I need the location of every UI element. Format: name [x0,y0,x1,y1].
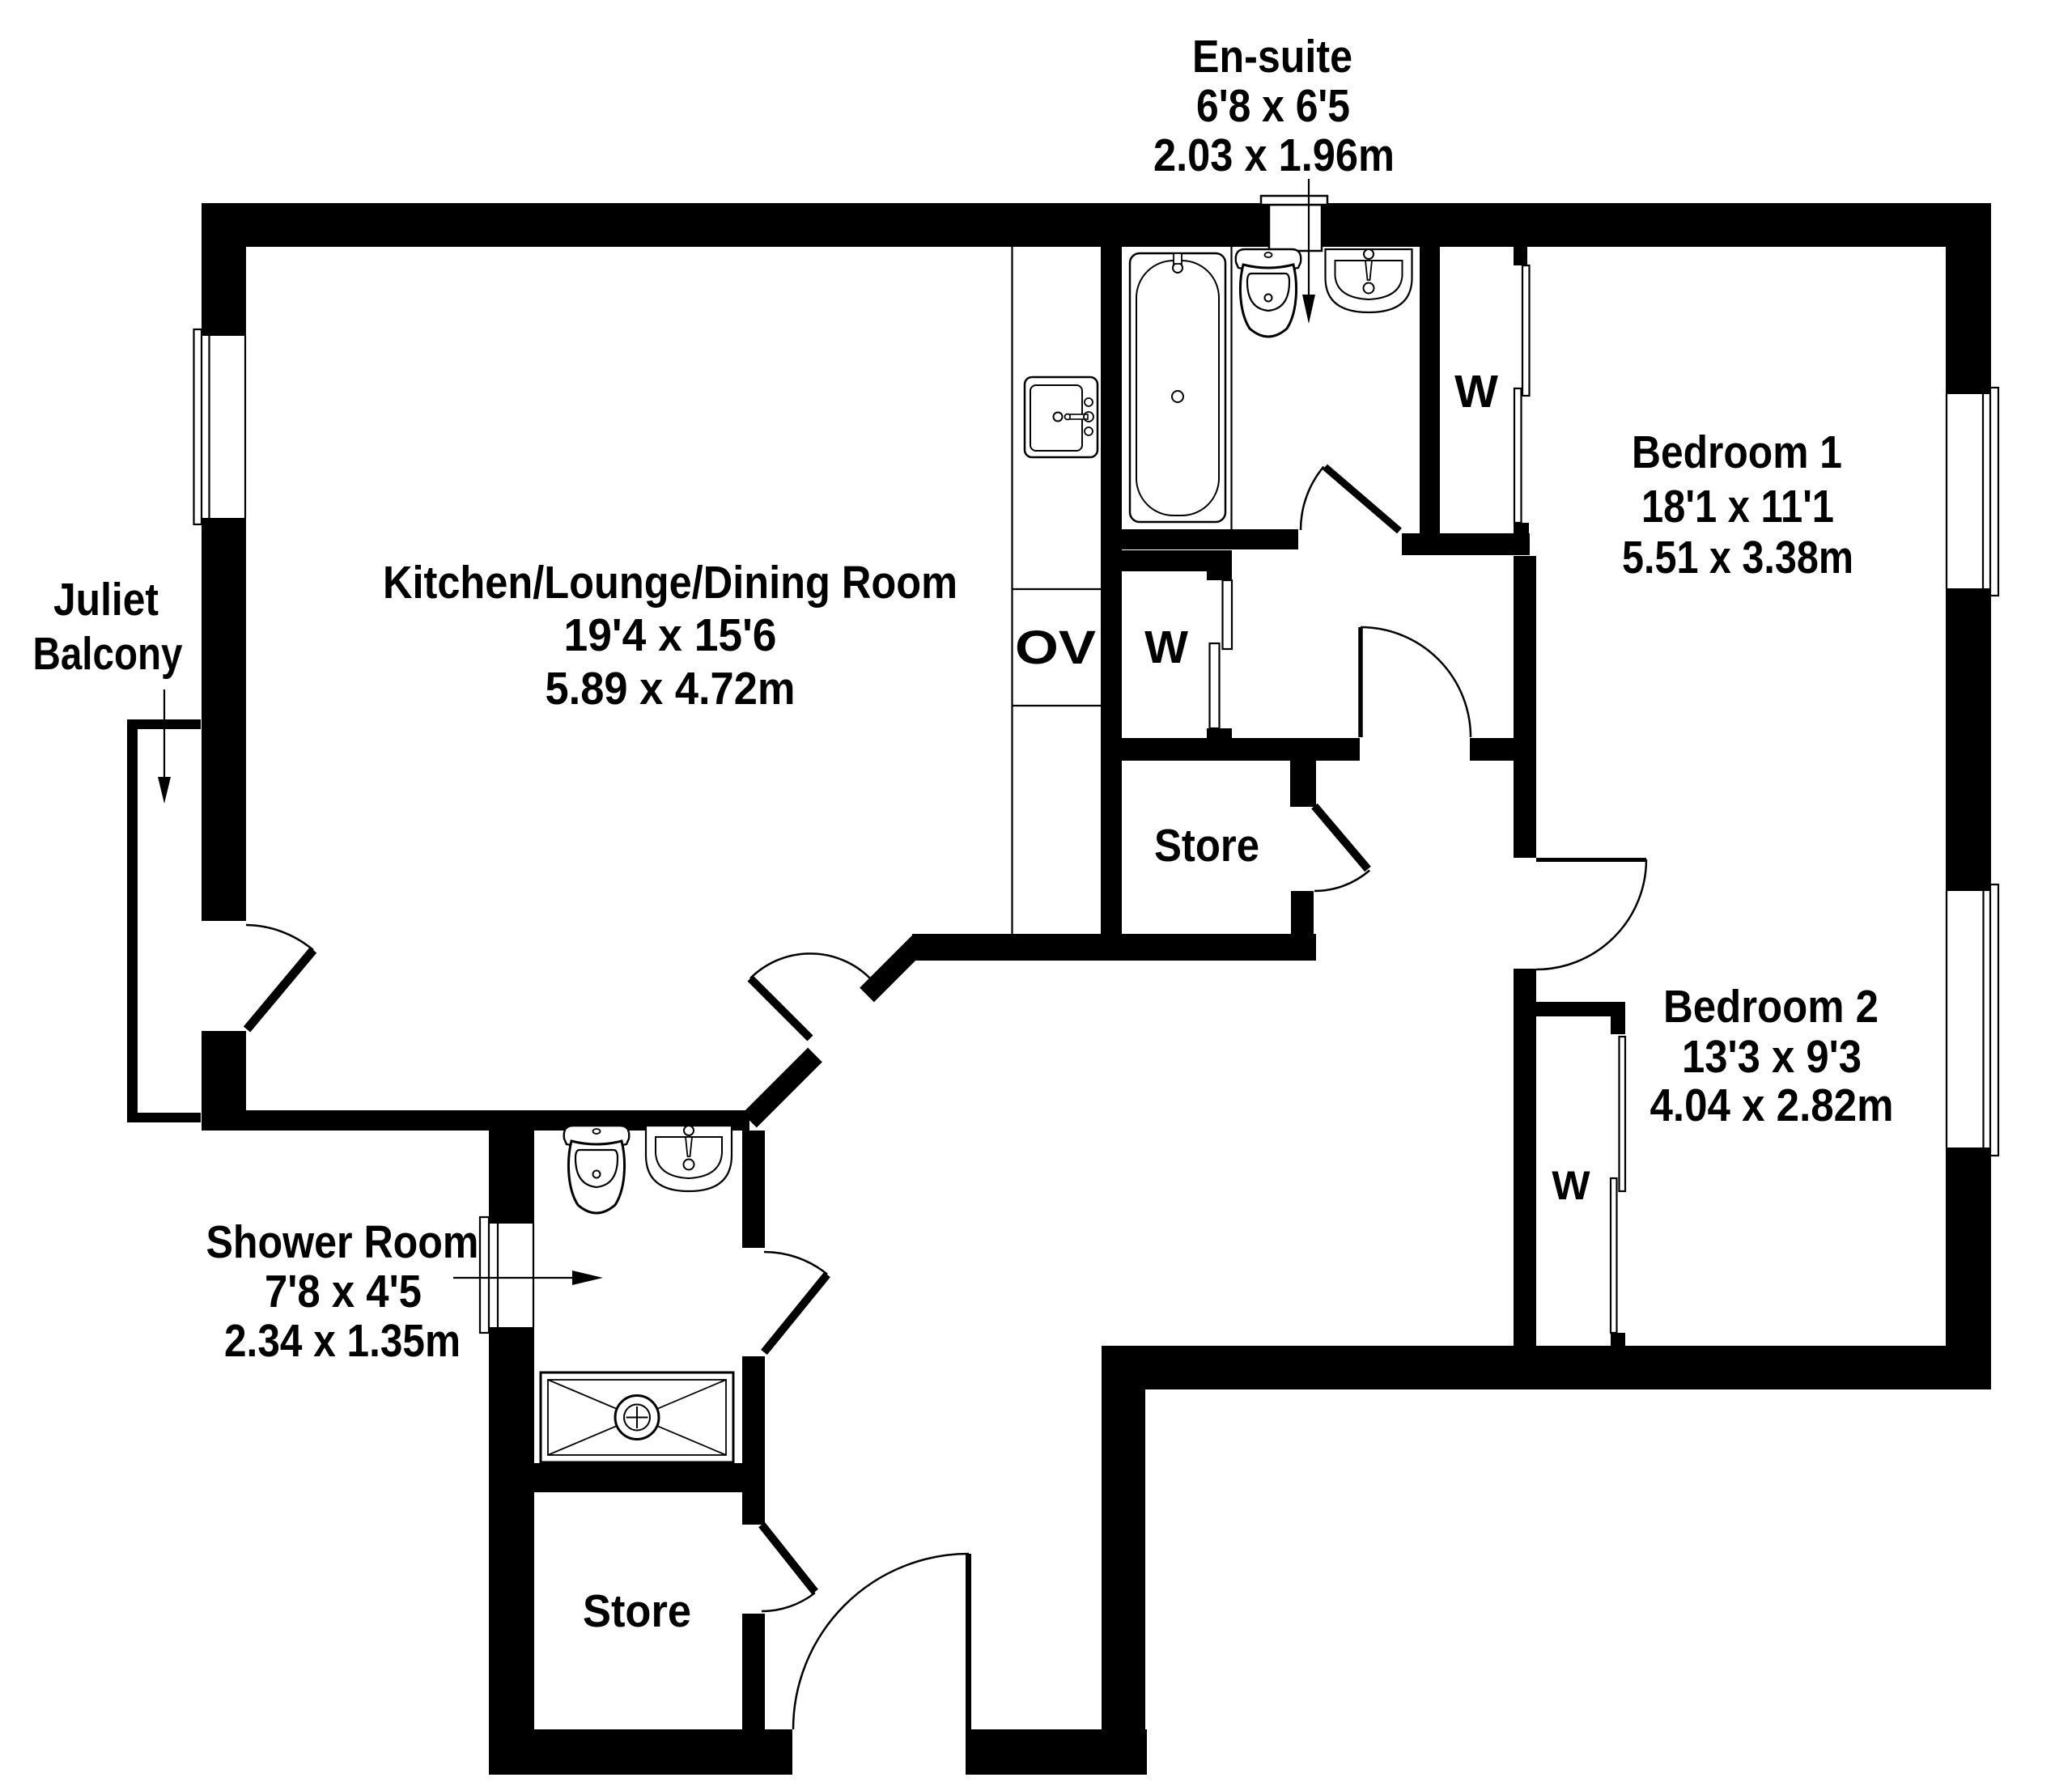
svg-text:4.04 x 2.82m: 4.04 x 2.82m [1650,1080,1894,1131]
svg-text:Store: Store [583,1585,691,1637]
svg-text:18'1 x 11'1: 18'1 x 11'1 [1641,481,1834,532]
svg-text:2.34 x 1.35m: 2.34 x 1.35m [224,1315,461,1367]
svg-text:Shower Room: Shower Room [206,1216,479,1268]
svg-text:13'3 x 9'3: 13'3 x 9'3 [1682,1031,1862,1083]
svg-text:Balcony: Balcony [33,628,183,680]
svg-text:En-suite: En-suite [1192,31,1352,83]
svg-text:19'4 x 15'6: 19'4 x 15'6 [564,609,777,661]
svg-text:Juliet: Juliet [53,574,159,626]
svg-text:OV: OV [1015,621,1096,674]
svg-text:5.89 x 4.72m: 5.89 x 4.72m [546,663,796,715]
svg-text:Bedroom 1: Bedroom 1 [1632,426,1842,478]
svg-text:W: W [1552,1163,1590,1208]
svg-text:7'8 x 4'5: 7'8 x 4'5 [265,1266,422,1317]
svg-text:Kitchen/Lounge/Dining Room: Kitchen/Lounge/Dining Room [383,557,957,609]
svg-text:Store: Store [1154,820,1259,872]
svg-text:6'8 x 6'5: 6'8 x 6'5 [1196,80,1350,132]
svg-text:Bedroom 2: Bedroom 2 [1663,981,1879,1033]
svg-text:W: W [1454,366,1498,418]
svg-text:5.51 x 3.38m: 5.51 x 3.38m [1622,532,1853,583]
svg-text:W: W [1144,621,1188,673]
svg-text:2.03 x 1.96m: 2.03 x 1.96m [1153,129,1395,181]
